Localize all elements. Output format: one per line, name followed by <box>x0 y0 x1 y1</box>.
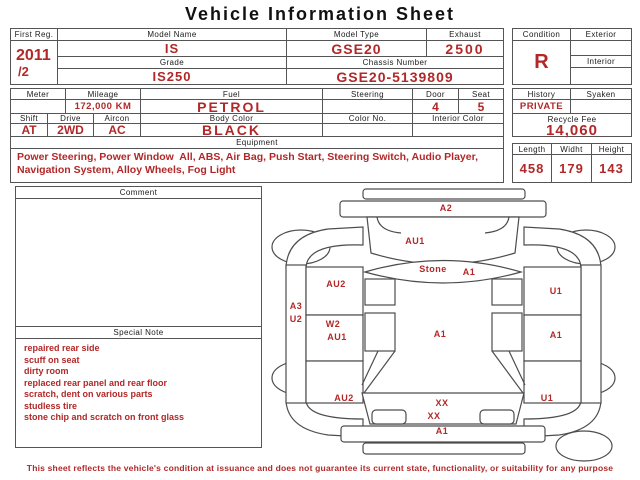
right-sill <box>581 265 601 403</box>
condition-value: R <box>513 41 571 84</box>
damage-label-xx: XX <box>427 411 440 421</box>
first-reg-value: 2011 /2 <box>11 41 58 84</box>
width-value: 179 <box>552 155 592 182</box>
model-type-value: GSE20 <box>287 41 427 57</box>
interior-label: Interior <box>571 56 631 68</box>
seat-value: 5 <box>459 100 503 113</box>
damage-label-a1: A1 <box>434 329 447 339</box>
footer-disclaimer: This sheet reflects the vehicle's condit… <box>0 463 640 473</box>
damage-label-a3: A3 <box>290 301 303 311</box>
special-note-line: repaired rear side <box>24 343 253 355</box>
right-taillight <box>480 410 514 424</box>
comment-section: Comment <box>15 186 262 327</box>
aircon-value: AC <box>94 124 141 136</box>
damage-label-u2: U2 <box>290 314 303 324</box>
condition-label: Condition <box>513 29 571 41</box>
special-note-line: stone chip and scratch on front glass <box>24 412 253 424</box>
mileage-label: Mileage <box>66 89 141 100</box>
left-taillight <box>372 410 406 424</box>
left-sill <box>286 265 306 403</box>
history-table: History Syaken PRIVATE Recycle Fee 14,06… <box>512 88 632 137</box>
history-label: History <box>513 89 571 100</box>
syaken-value <box>571 100 631 113</box>
spec-table: Meter Mileage Fuel Steering Door Seat 17… <box>10 88 504 137</box>
damage-label-a1: A1 <box>463 267 476 277</box>
interior-color-label: Interior Color <box>413 114 503 124</box>
exhaust-value: 2500 <box>427 41 503 57</box>
special-note-section: Special Note repaired rear sidescuff on … <box>15 326 262 448</box>
door-value: 4 <box>413 100 459 113</box>
comment-body <box>16 199 261 207</box>
steering-value <box>323 100 413 113</box>
special-note-label: Special Note <box>16 327 261 339</box>
grade-value: IS250 <box>58 69 287 84</box>
comment-label: Comment <box>16 187 261 199</box>
right-rear-window <box>492 313 522 351</box>
mileage-value: 172,000 KM <box>66 100 141 113</box>
damage-label-u1: U1 <box>550 286 563 296</box>
chassis-number-label: Chassis Number <box>287 57 503 69</box>
syaken-label: Syaken <box>571 89 631 100</box>
meter-label: Meter <box>11 89 66 100</box>
model-type-label: Model Type <box>287 29 427 41</box>
header-info-table: First Reg. 2011 /2 Model Name IS Grade I… <box>10 28 504 85</box>
equipment-text: Power Steering, Power Window All, ABS, A… <box>11 149 503 179</box>
fuel-value: PETROL <box>141 100 323 113</box>
shift-value: AT <box>11 124 48 136</box>
damage-label-a1: A1 <box>550 330 563 340</box>
interior-value <box>571 68 631 84</box>
length-label: Length <box>513 144 552 155</box>
dimensions-table: Length Widht Height 458 179 143 <box>512 143 632 183</box>
left-rear-window <box>365 313 395 351</box>
door-label: Door <box>413 89 459 100</box>
first-reg-month: /2 <box>16 65 29 78</box>
drive-value: 2WD <box>48 124 94 136</box>
hood <box>367 217 519 264</box>
first-reg-year: 2011 <box>16 48 51 64</box>
equipment-label: Equipment <box>11 137 503 149</box>
exterior-value <box>571 41 631 56</box>
exterior-label: Exterior <box>571 29 631 41</box>
exhaust-label: Exhaust <box>427 29 503 41</box>
chassis-number-value: GSE20-5139809 <box>287 69 503 84</box>
equipment-section: Equipment Power Steering, Power Window A… <box>10 136 504 183</box>
damage-label-xx: XX <box>435 398 448 408</box>
damage-label-a2: A2 <box>440 203 453 213</box>
model-name-label: Model Name <box>58 29 287 41</box>
right-c-pillar <box>492 351 525 393</box>
damage-label-stone: Stone <box>419 264 447 274</box>
body-color-value: BLACK <box>141 124 323 136</box>
car-diagram: A2AU1StoneA1AU2A3U2W2AU1A1U1A1AU2U1XXXXA… <box>268 187 635 464</box>
special-note-line: replaced rear panel and rear floor <box>24 378 253 390</box>
special-note-line: scratch, dent on various parts <box>24 389 253 401</box>
damage-label-u1: U1 <box>541 393 554 403</box>
history-value: PRIVATE <box>513 100 571 113</box>
color-no-value <box>323 124 413 136</box>
spare-tire <box>556 431 612 461</box>
special-note-body: repaired rear sidescuff on seatdirty roo… <box>16 339 261 428</box>
steering-label: Steering <box>323 89 413 100</box>
damage-label-w2: W2 <box>326 319 341 329</box>
first-reg-label: First Reg. <box>11 29 58 41</box>
left-front-door <box>306 267 363 315</box>
length-value: 458 <box>513 155 552 182</box>
grade-label: Grade <box>58 57 287 69</box>
rear-bumper-outer <box>363 443 525 454</box>
front-bumper-outer <box>363 189 525 199</box>
height-label: Height <box>592 144 631 155</box>
color-no-label: Color No. <box>323 114 413 124</box>
damage-label-au2: AU2 <box>334 393 354 403</box>
damage-label-a1: A1 <box>436 426 449 436</box>
left-c-pillar <box>362 351 395 393</box>
vehicle-information-sheet: Vehicle Information Sheet First Reg. 201… <box>0 0 640 480</box>
damage-label-au1: AU1 <box>327 332 347 342</box>
left-front-window <box>365 279 395 305</box>
meter-value <box>11 100 66 113</box>
damage-label-au2: AU2 <box>326 279 346 289</box>
damage-label-au1: AU1 <box>405 236 425 246</box>
model-name-value: IS <box>58 41 287 57</box>
special-note-line: scuff on seat <box>24 355 253 367</box>
seat-label: Seat <box>459 89 503 100</box>
page-title: Vehicle Information Sheet <box>0 4 640 25</box>
interior-color-value <box>413 124 503 136</box>
height-value: 143 <box>592 155 631 182</box>
recycle-fee-value: 14,060 <box>513 124 631 136</box>
condition-table: Condition R Exterior Interior <box>512 28 632 85</box>
right-front-window <box>492 279 522 305</box>
special-note-line: studless tire <box>24 401 253 413</box>
special-note-line: dirty room <box>24 366 253 378</box>
width-label: Widht <box>552 144 592 155</box>
